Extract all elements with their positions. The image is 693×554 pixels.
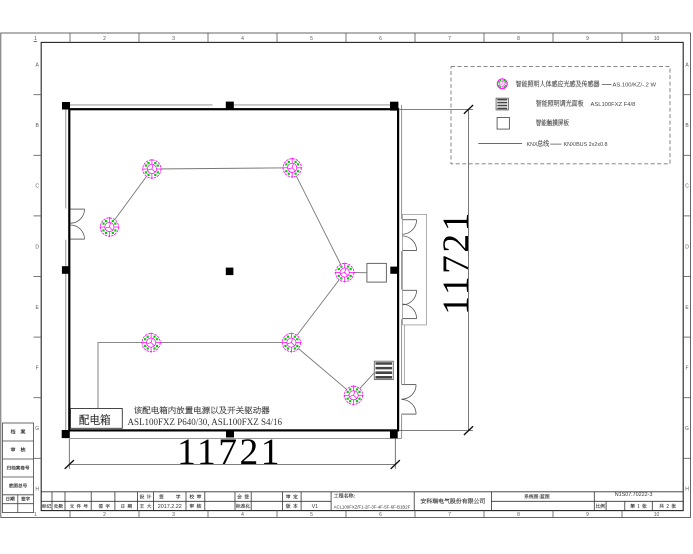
svg-text:D: D — [35, 244, 39, 250]
svg-text:A: A — [685, 63, 689, 69]
svg-text:10: 10 — [654, 512, 660, 518]
svg-text:11721: 11721 — [177, 432, 282, 473]
svg-text:AS.100/KZ/-.2 W: AS.100/KZ/-.2 W — [613, 83, 657, 89]
svg-text:G: G — [685, 426, 689, 432]
svg-text:11721: 11721 — [436, 210, 477, 315]
svg-text:9: 9 — [586, 512, 589, 518]
svg-text:1: 1 — [34, 512, 37, 518]
svg-text:B: B — [36, 123, 40, 129]
svg-text:7: 7 — [448, 36, 451, 42]
svg-text:A: A — [36, 63, 40, 69]
svg-text:3: 3 — [172, 36, 175, 42]
svg-text:H: H — [685, 487, 689, 493]
svg-text:2017.2.22: 2017.2.22 — [158, 504, 182, 510]
svg-text:G: G — [35, 426, 39, 432]
svg-text:10: 10 — [654, 36, 660, 42]
svg-text:9: 9 — [586, 36, 589, 42]
svg-text:ASL100FXZ F4/8: ASL100FXZ F4/8 — [591, 102, 636, 108]
svg-text:3: 3 — [172, 512, 175, 518]
svg-text:V1: V1 — [312, 504, 318, 510]
svg-text:KNX: KNX — [527, 142, 538, 148]
svg-text:8: 8 — [517, 36, 520, 42]
svg-text:E: E — [36, 305, 40, 311]
svg-text:2: 2 — [103, 512, 106, 518]
svg-text:5: 5 — [310, 36, 313, 42]
svg-text:D: D — [685, 244, 689, 250]
svg-text:B: B — [685, 123, 689, 129]
svg-text:6: 6 — [379, 36, 382, 42]
svg-text:E: E — [685, 305, 689, 311]
svg-text:KNX/BUS 2x2x0.8: KNX/BUS 2x2x0.8 — [564, 142, 608, 148]
svg-text:C: C — [685, 184, 689, 190]
svg-text:ACL100FXZ/F1-2F-3F-4F-5F-6F-B1: ACL100FXZ/F1-2F-3F-4F-5F-6F-B1B2F — [334, 505, 411, 510]
svg-text:7: 7 — [448, 512, 451, 518]
svg-text:6: 6 — [379, 512, 382, 518]
svg-text:F: F — [685, 366, 688, 372]
svg-text:F: F — [36, 366, 39, 372]
svg-text:N1S07.70222-3: N1S07.70222-3 — [615, 492, 653, 498]
svg-text:4: 4 — [241, 512, 244, 518]
svg-text:4: 4 — [241, 36, 244, 42]
svg-text:8: 8 — [517, 512, 520, 518]
svg-text:1: 1 — [34, 36, 37, 42]
svg-text:ASL100FXZ P640/30, ASL100FXZ S: ASL100FXZ P640/30, ASL100FXZ S4/16 — [128, 417, 283, 427]
svg-text:H: H — [35, 487, 39, 493]
svg-text:2: 2 — [103, 36, 106, 42]
svg-text:5: 5 — [310, 512, 313, 518]
svg-text:C: C — [35, 184, 39, 190]
